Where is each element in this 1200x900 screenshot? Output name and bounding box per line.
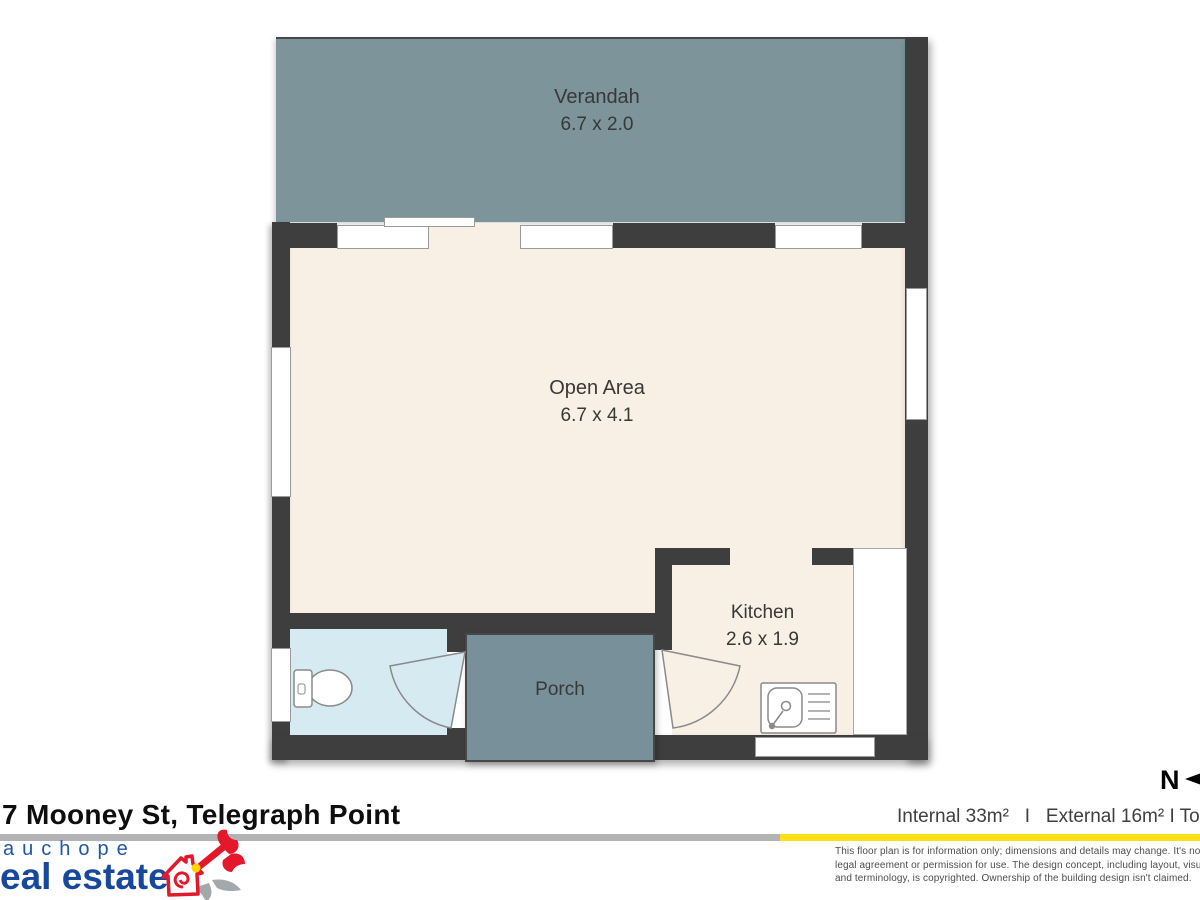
open-area-dims: 6.7 x 4.1 [289,402,905,429]
disclaimer-text: This floor plan is for information only;… [835,845,1200,889]
porch-label-block: Porch [465,676,655,703]
north-arrow-icon [1185,771,1200,787]
address-title: 7 Mooney St, Telegraph Point [2,799,400,831]
open-area-label-block: Open Area 6.7 x 4.1 [289,375,905,429]
divider-yellow [780,834,1200,841]
north-label: N [1160,765,1180,796]
logo-pin-dot [192,864,201,873]
toilet-icon [294,670,352,707]
area-summary: Internal 33m² I External 16m² I Total 49… [897,806,1200,828]
kitchen-label: Kitchen [672,599,853,626]
disclaimer-line-2: legal agreement or permission for use. T… [835,859,1200,873]
floor-plan: Verandah 6.7 x 2.0 Open Area 6.7 x 4.1 K… [0,0,1200,790]
logo-dart-icon [195,830,245,872]
bathroom-door-arc [390,652,465,728]
floorplan-page: Verandah 6.7 x 2.0 Open Area 6.7 x 4.1 K… [0,0,1200,900]
disclaimer-line-1: This floor plan is for information only;… [835,845,1200,859]
logo-house-icon [163,856,202,895]
porch-label: Porch [465,676,655,703]
verandah-label: Verandah [289,84,905,111]
disclaimer-line-3: and terminology, is copyrighted. Ownersh… [835,872,1200,886]
agency-logo-icon [157,828,247,900]
kitchen-label-block: Kitchen 2.6 x 1.9 [672,599,853,653]
kitchen-dims: 2.6 x 1.9 [672,626,853,653]
verandah-dims: 6.7 x 2.0 [289,111,905,138]
sink-icon [761,683,836,733]
agency-logo-word-bottom: eal estate [0,856,169,898]
kitchen-door-arc [662,650,740,728]
verandah-label-block: Verandah 6.7 x 2.0 [289,84,905,138]
open-area-label: Open Area [289,375,905,402]
logo-bird-icon [193,879,241,900]
